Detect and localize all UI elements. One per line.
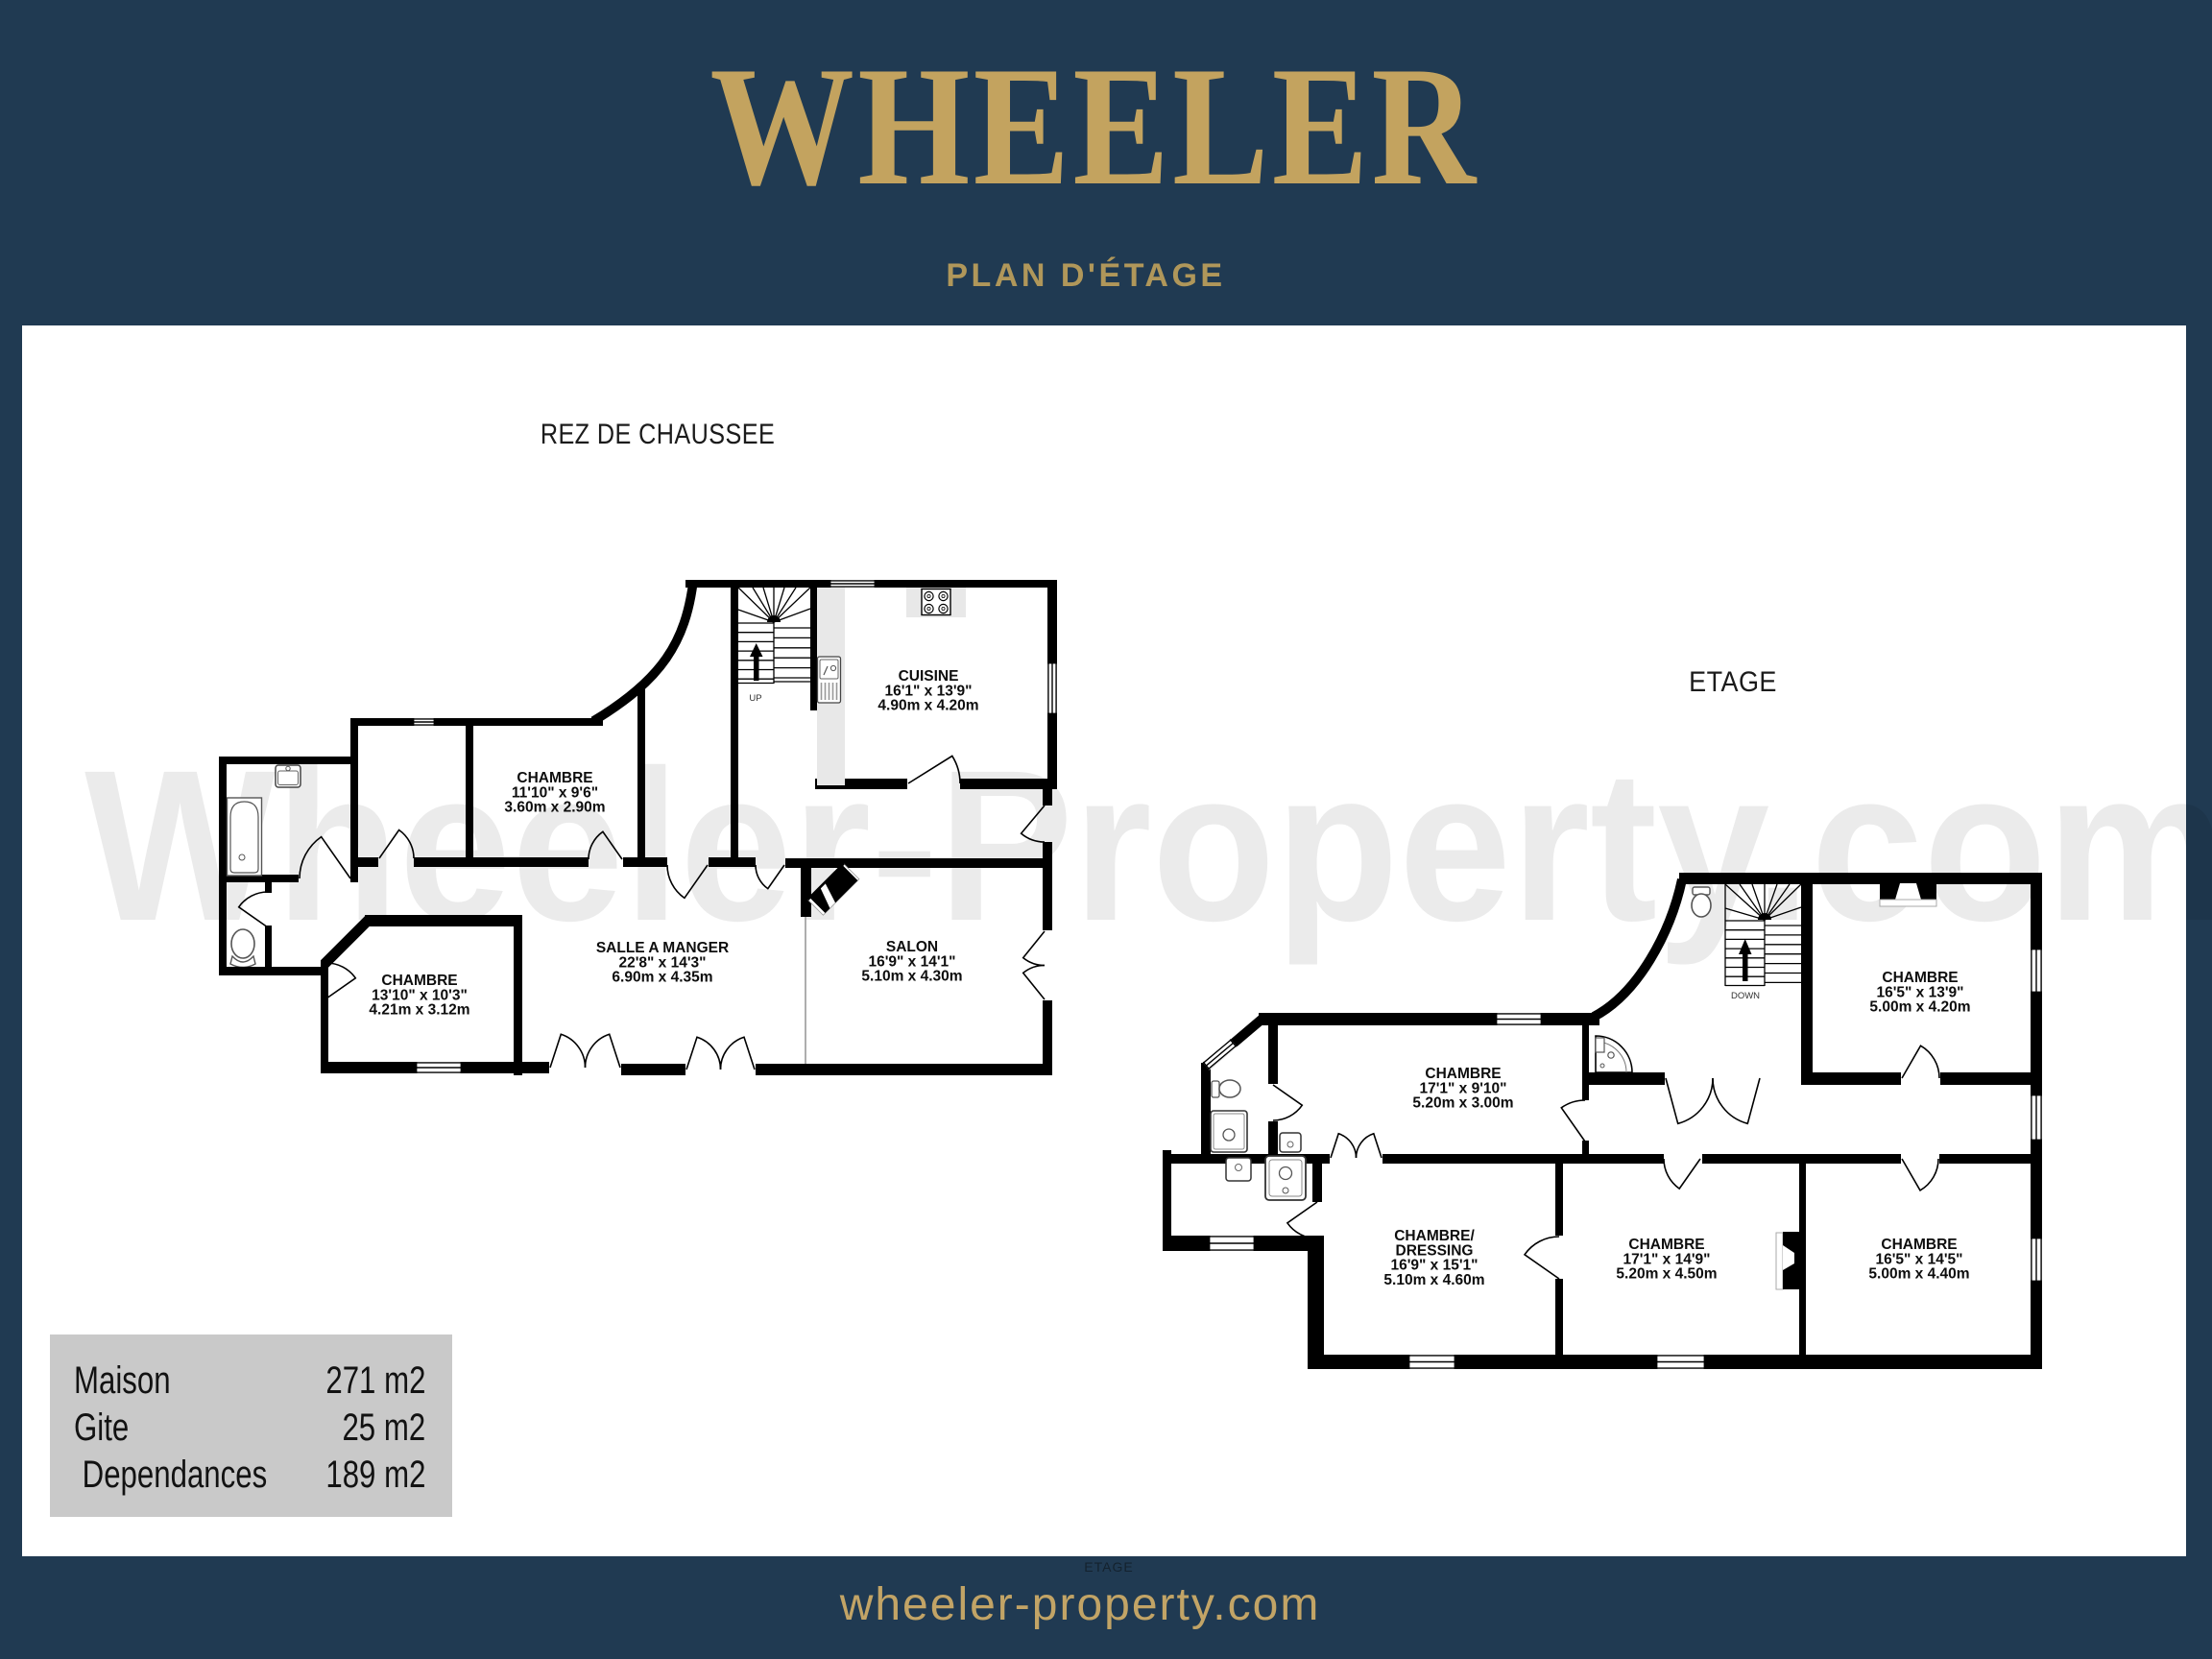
svg-text:5.10m x 4.30m: 5.10m x 4.30m bbox=[861, 969, 962, 985]
svg-text:4.21m x 3.12m: 4.21m x 3.12m bbox=[369, 1002, 469, 1019]
svg-text:5.00m x 4.20m: 5.00m x 4.20m bbox=[1869, 999, 1970, 1016]
svg-text:5.20m x 3.00m: 5.20m x 3.00m bbox=[1412, 1095, 1513, 1112]
svg-text:DOWN: DOWN bbox=[1731, 991, 1760, 1001]
svg-text:4.90m x 4.20m: 4.90m x 4.20m bbox=[878, 698, 978, 714]
svg-text:6.90m x 4.35m: 6.90m x 4.35m bbox=[612, 970, 712, 986]
svg-text:5.00m x 4.40m: 5.00m x 4.40m bbox=[1868, 1266, 1969, 1283]
svg-text:5.20m x 4.50m: 5.20m x 4.50m bbox=[1616, 1266, 1717, 1283]
svg-text:UP: UP bbox=[749, 693, 761, 704]
svg-text:3.60m x 2.90m: 3.60m x 2.90m bbox=[504, 800, 605, 816]
svg-text:5.10m x 4.60m: 5.10m x 4.60m bbox=[1383, 1272, 1484, 1288]
